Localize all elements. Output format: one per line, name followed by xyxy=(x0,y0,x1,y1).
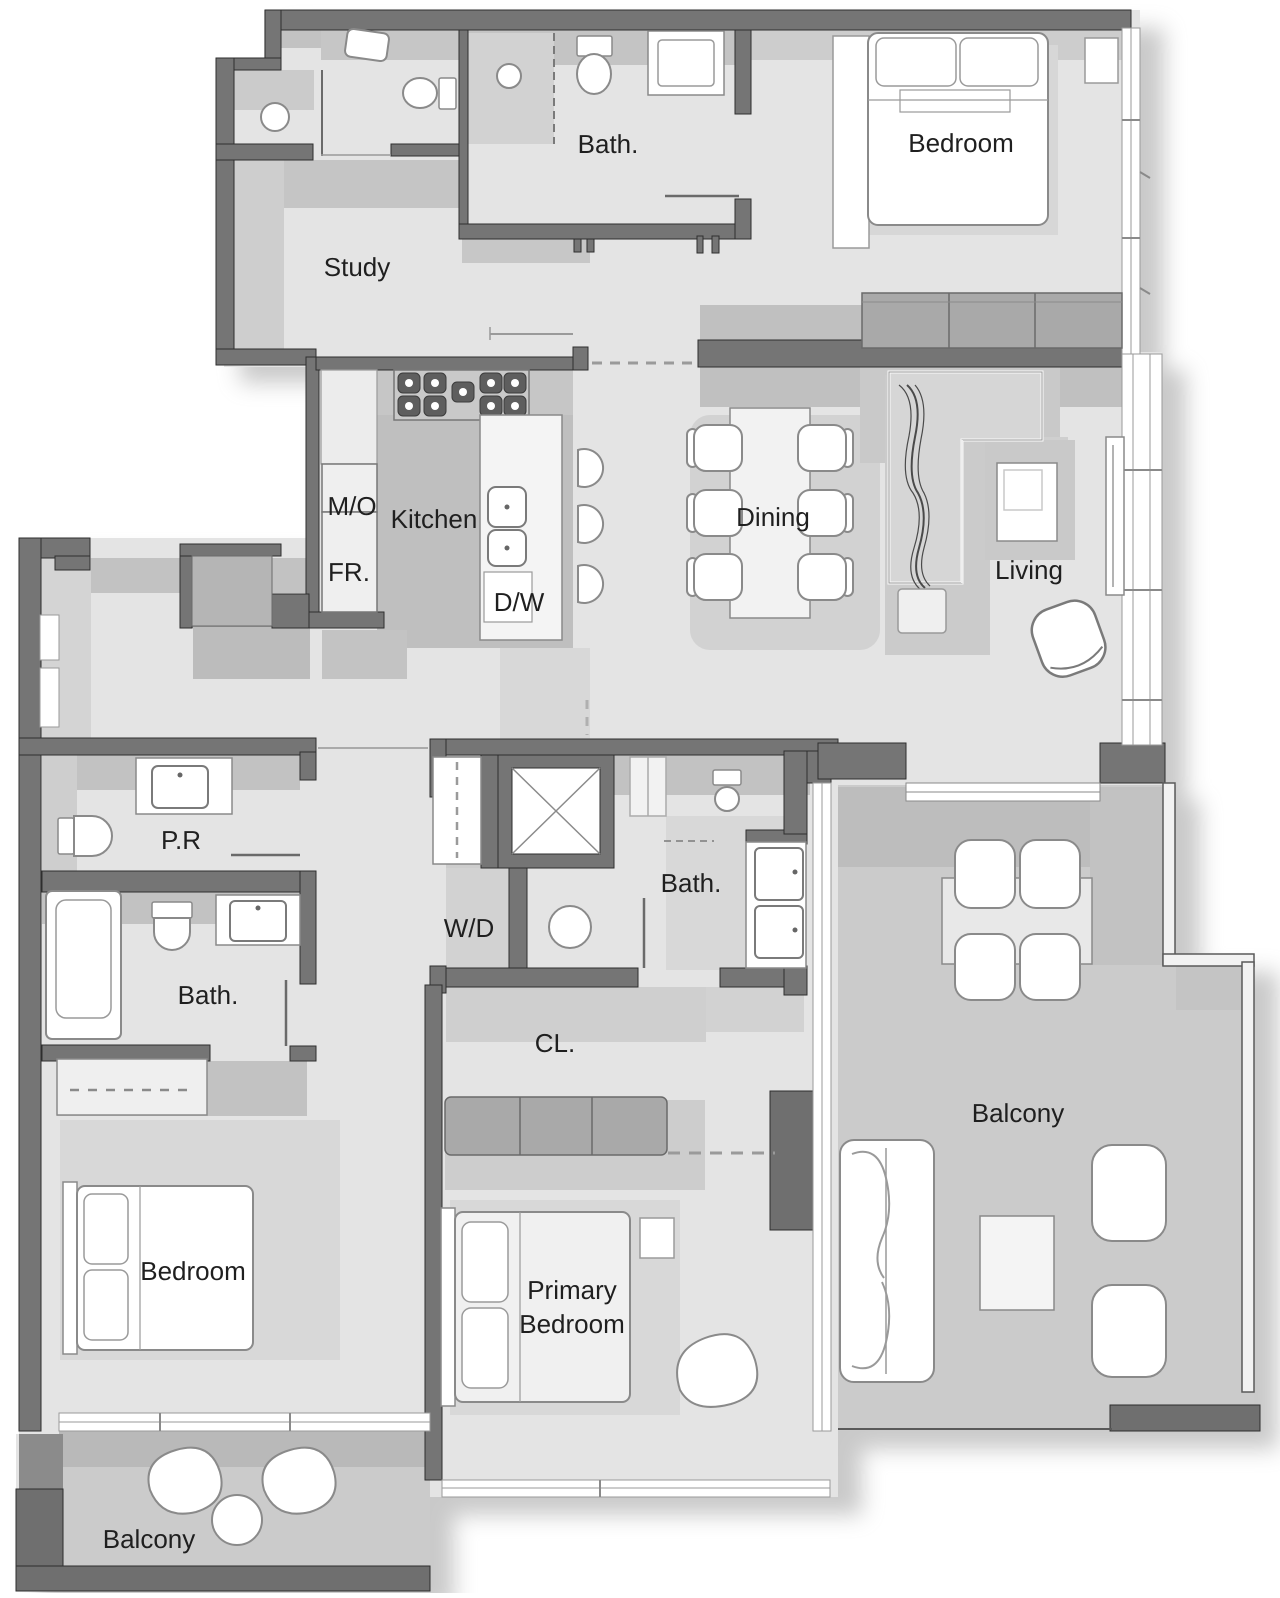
svg-text:Balcony: Balcony xyxy=(972,1098,1065,1128)
svg-text:Dining: Dining xyxy=(736,502,810,532)
svg-text:W/D: W/D xyxy=(444,913,495,943)
svg-text:FR.: FR. xyxy=(328,557,370,587)
svg-text:Study: Study xyxy=(324,252,391,282)
svg-text:Balcony: Balcony xyxy=(103,1524,196,1554)
svg-text:Bedroom: Bedroom xyxy=(140,1256,246,1286)
svg-text:CL.: CL. xyxy=(535,1028,575,1058)
svg-text:P.R: P.R xyxy=(161,825,201,855)
svg-text:Kitchen: Kitchen xyxy=(391,504,478,534)
svg-text:M/O: M/O xyxy=(327,491,376,521)
svg-text:Bath.: Bath. xyxy=(661,868,722,898)
svg-text:D/W: D/W xyxy=(494,587,545,617)
svg-text:Bath.: Bath. xyxy=(178,980,239,1010)
svg-text:Bedroom: Bedroom xyxy=(519,1309,625,1339)
svg-text:Bedroom: Bedroom xyxy=(908,128,1014,158)
svg-text:Bath.: Bath. xyxy=(578,129,639,159)
svg-text:Living: Living xyxy=(995,555,1063,585)
svg-text:Primary: Primary xyxy=(527,1275,617,1305)
